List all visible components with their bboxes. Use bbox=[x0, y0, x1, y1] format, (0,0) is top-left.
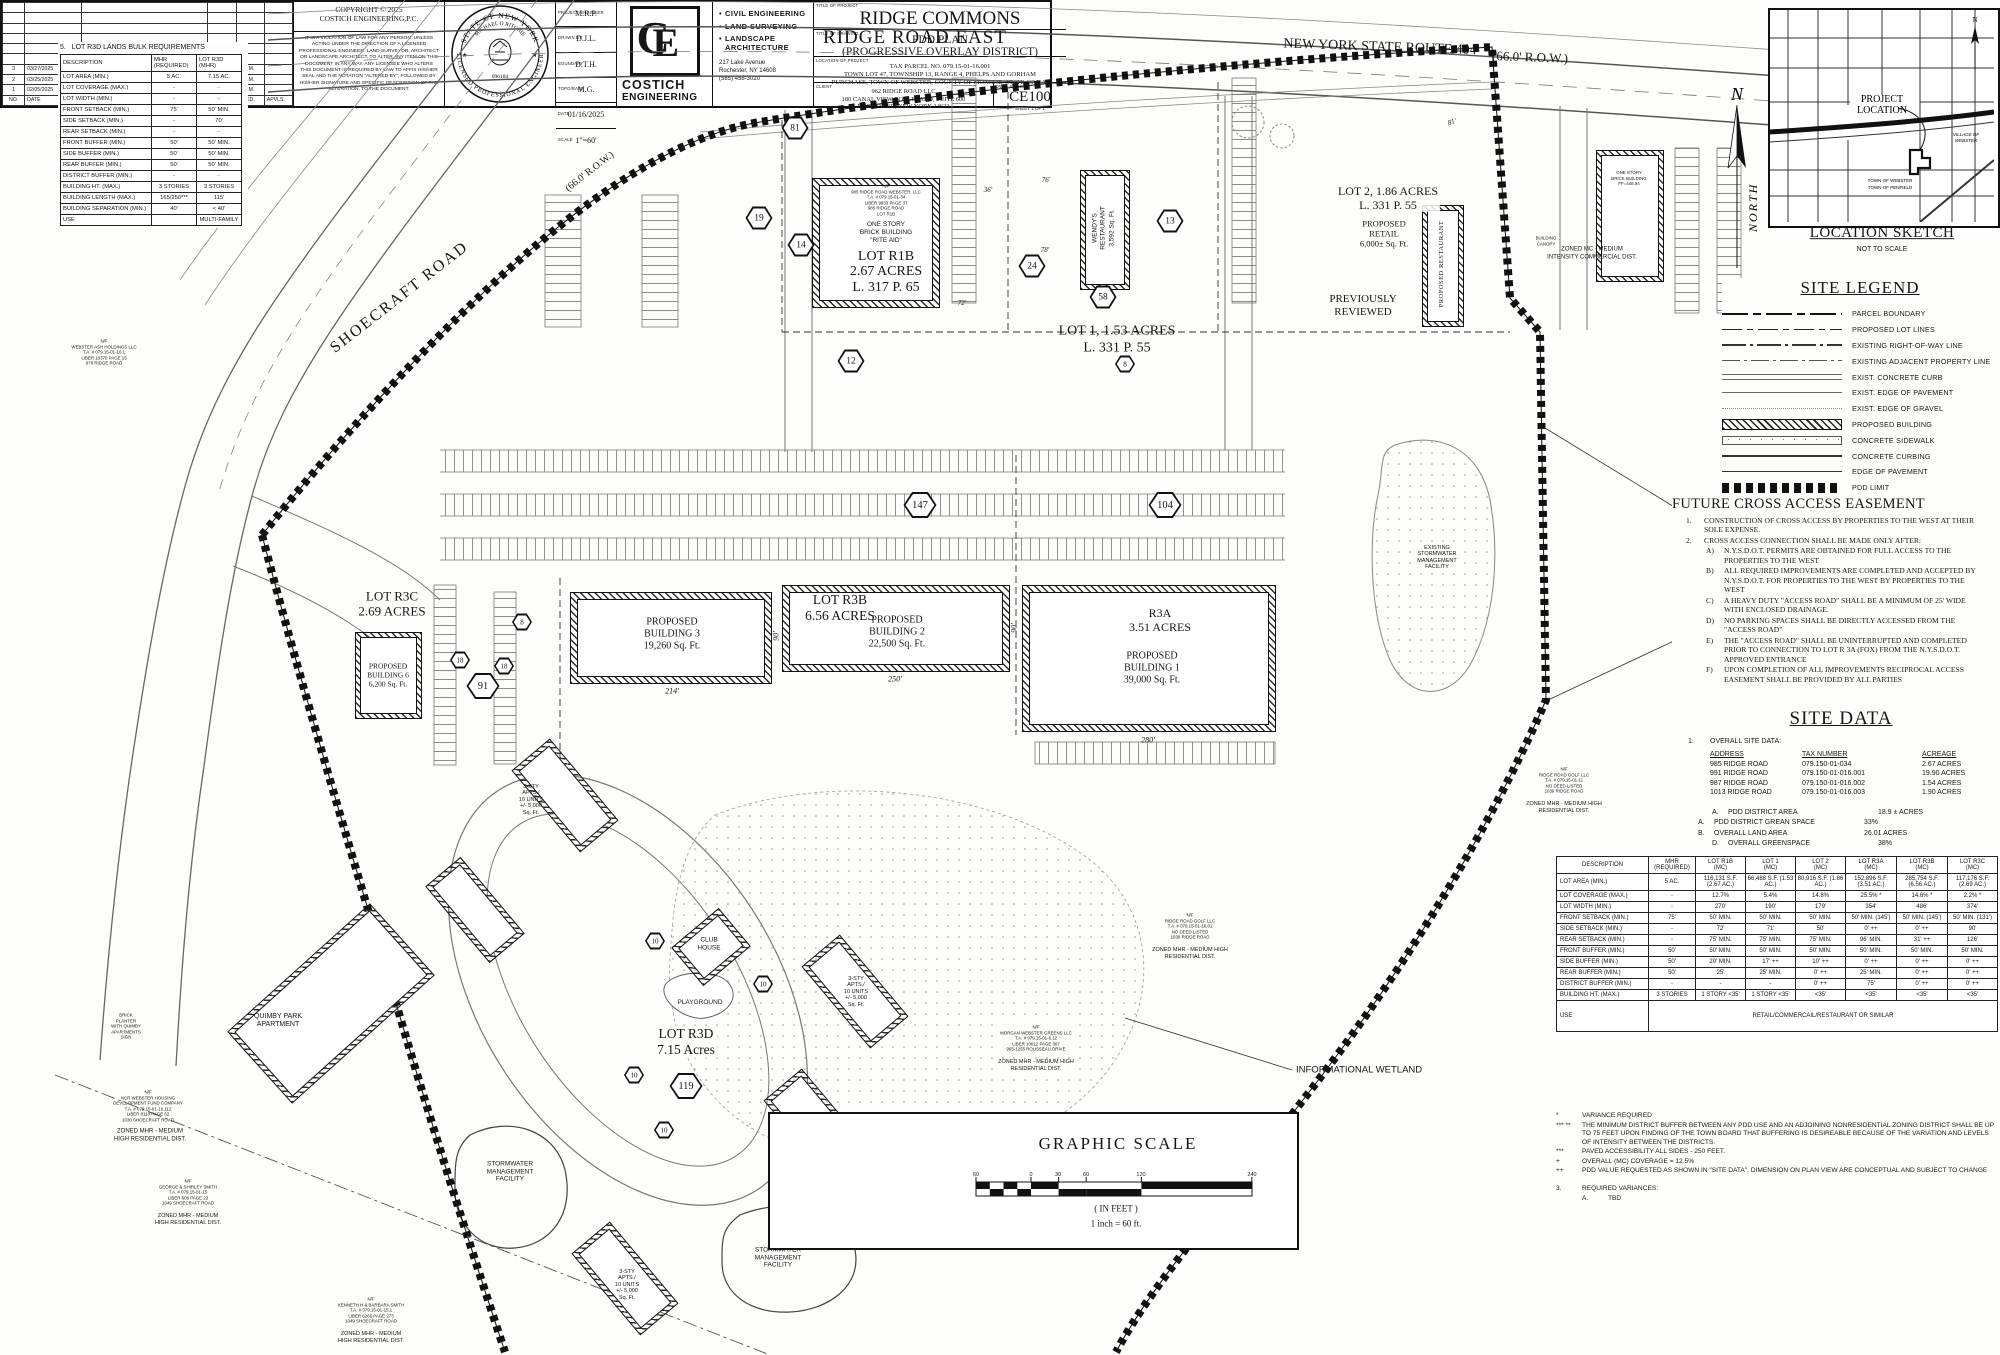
label-one-story-brick: ONE STORYBRICK BUILDINGFF=448.94 bbox=[1611, 170, 1646, 187]
scale-tick: 60 bbox=[973, 1172, 979, 1178]
legend-symbol-icon bbox=[1722, 308, 1842, 320]
legend-symbol-icon bbox=[1722, 371, 1842, 383]
legend-symbol-icon bbox=[1722, 403, 1842, 415]
col-acreage: ACREAGE bbox=[1922, 751, 1994, 758]
label-building-canopy: BUILDINGCANOPY bbox=[1536, 236, 1557, 247]
legend-item: PDD LIMIT bbox=[1722, 480, 1998, 496]
site-metric-row: D. OVERALL GREENSPACE 38% bbox=[1712, 839, 1994, 850]
table-row: BUILDING HT. (MAX.) 3 STORIES 3 STORIES bbox=[61, 182, 242, 193]
dim-72: 72' bbox=[958, 299, 967, 307]
col-header: MHR(REQUIRED) bbox=[1649, 857, 1696, 874]
legend-item: EXIST. EDGE OF PAVEMENT bbox=[1722, 385, 1998, 401]
note-line: F) UPON COMPLETION OF ALL IMPROVEMENTS R… bbox=[1706, 665, 1982, 684]
cross-access-easement-notes: FUTURE CROSS ACCESS EASEMENT 1. CONSTRUC… bbox=[1672, 496, 1982, 685]
owner-note-webster-ash: N/FWEBSTER ASH HOLDINGS LLCT.A. # 079.15… bbox=[69, 338, 138, 366]
label-zoned-mhr: ZONED MHR - MEDIUMHIGH RESIDENTIAL DIST. bbox=[338, 1331, 404, 1345]
required-variances: 3. REQUIRED VARIANCES: bbox=[1556, 1185, 1996, 1194]
label-building-6: PROPOSEDBUILDING 66,200 Sq. Ft. bbox=[367, 663, 409, 690]
label-zoned-mc: ZONED MC - MEDIUMINTENSITY COMMERCIAL DI… bbox=[1547, 247, 1637, 262]
legend-symbol-icon bbox=[1722, 466, 1842, 478]
table-row: SIDE SETBACK (MIN.) - 72' 71' 50' 0' ++ … bbox=[1557, 924, 1998, 935]
legend-item: CONCRETE CURBING bbox=[1722, 448, 1998, 464]
graphic-scale-title: GRAPHIC SCALE bbox=[1039, 1134, 1198, 1154]
footnote: ++ PDD VALUE REQUESTED AS SHOWN IN "SITE… bbox=[1556, 1167, 1996, 1176]
svg-text:NORTH: NORTH bbox=[1746, 183, 1760, 233]
note-line: A) N.Y.S.D.O.T. PERMITS ARE OBTAINED FOR… bbox=[1706, 546, 1982, 565]
label-r3a: R3A3.51 ACRES bbox=[1129, 606, 1191, 634]
note-line: 1. CONSTRUCTION OF CROSS ACCESS BY PROPE… bbox=[1686, 516, 1982, 535]
label-apartments: 3-STYAPTS./10 UNITS+/- 5,000Sq. Ft. bbox=[844, 976, 868, 1008]
col-header: DESCRIPTION bbox=[61, 55, 152, 72]
table-row: LOT COVERAGE (MAX.) - - bbox=[61, 83, 242, 94]
col-header: LOT 1(MC) bbox=[1746, 857, 1796, 874]
legend-symbol-icon bbox=[1722, 418, 1842, 430]
label-building-2: PROPOSEDBUILDING 222,500 Sq. Ft. bbox=[869, 614, 925, 649]
owner-note-smith-g: N/FGEORGE & SHIRLEY SMITHT.A. # 079.15-0… bbox=[159, 1178, 217, 1206]
legend-label: PROPOSED BUILDING bbox=[1852, 420, 1932, 429]
label-stormwater-a: STORMWATERMANAGEMENTFACILITY bbox=[487, 1161, 534, 1184]
legend-label: EXISTING RIGHT-OF-WAY LINE bbox=[1852, 341, 1963, 350]
owner-note-ncr: N/FNCR WEBSTER HOUSINGDEVELOPMENT FUND C… bbox=[113, 1090, 183, 1123]
col-header: LOT 2(MC) bbox=[1796, 857, 1846, 874]
road-label-ridge-road-east: RIDGE ROAD EAST bbox=[823, 27, 1007, 49]
table-row: REAR BUFFER (MIN.) 50' 25' 25' MIN. 0' +… bbox=[1557, 968, 1998, 979]
label-wendys: WENDY'SRESTAURANT3,592 Sq. Ft. bbox=[1091, 206, 1116, 250]
owner-note-golf-1: N/FRIDGE ROAD GOLF LLCT.A. # 079.15-01-1… bbox=[1163, 912, 1217, 940]
dim-280: 280' bbox=[1141, 735, 1155, 744]
table-row: LOT COVERAGE (MAX.) - 12.7% 5.4% 14.8% 2… bbox=[1557, 891, 1998, 902]
legend-label: CONCRETE SIDEWALK bbox=[1852, 436, 1935, 445]
table-title: LOT R3D LANDS BULK REQUIREMENTS bbox=[72, 44, 205, 51]
table-row: FRONT BUFFER (MIN.) 50' 50' MIN. bbox=[61, 138, 242, 149]
col-header: LOT R1B(MC) bbox=[1696, 857, 1746, 874]
table-row: FRONT BUFFER (MIN.) 50' 50' MIN. 50' MIN… bbox=[1557, 946, 1998, 957]
scale-units: ( IN FEET ) bbox=[1094, 1204, 1138, 1215]
label-lot-1: LOT 1, 1.53 ACRESL. 331 P. 55 bbox=[1059, 323, 1176, 356]
note-number: 5. bbox=[60, 44, 66, 51]
table-row: SIDE SETBACK (MIN.) - 70' bbox=[61, 116, 242, 127]
label-lot-r3d: LOT R3D7.15 Acres bbox=[655, 1026, 717, 1058]
table-row: LOT AREA (MIN.) 5 AC. 7.15 AC. bbox=[61, 72, 242, 83]
label-zoned-mhr-full: ZONED MHR - MEDIUM HIGHRESIDENTIAL DIST. bbox=[996, 1059, 1076, 1073]
table-row: FRONT SETBACK (MIN.) 75' 50' MIN. 50' MI… bbox=[1557, 913, 1998, 924]
legend-symbol-icon bbox=[1722, 482, 1842, 494]
pdd-bulk-requirements-table: DESCRIPTION MHR(REQUIRED) LOT R1B(MC) LO… bbox=[1556, 856, 1997, 1032]
legend-label: EXIST. EDGE OF PAVEMENT bbox=[1852, 388, 1953, 397]
table-row: REAR BUFFER (MIN.) 50' 50' MIN. bbox=[61, 160, 242, 171]
table-row: REAR SETBACK (MIN.) - 75' MIN. 75' MIN. … bbox=[1557, 935, 1998, 946]
owner-note-morgan: N/FMORGAN WEBSTER GREENS LLCT.A. # 079.1… bbox=[998, 1024, 1074, 1052]
scale-ratio: 1 inch = 60 ft. bbox=[1091, 1219, 1142, 1230]
svg-text:PROJECT: PROJECT bbox=[1861, 94, 1903, 105]
site-metric-row: A. PDD DISTRICT AREA 18.9 ± ACRES bbox=[1712, 808, 1994, 819]
location-sketch-subtitle: NOT TO SCALE bbox=[1857, 246, 1908, 254]
col-header: LOT R3B(MC) bbox=[1897, 857, 1948, 874]
parcel-row: 1013 RIDGE ROAD 079.150-01-016.003 1.90 … bbox=[1710, 788, 1994, 797]
label-building-3: PROPOSEDBUILDING 319,260 Sq. Ft. bbox=[644, 616, 700, 651]
parcel-row: 991 RIDGE ROAD 079.150-01-016.001 19.90 … bbox=[1710, 769, 1994, 778]
label-rite-aid: ONE STORYBRICK BUILDING"RITE AID" bbox=[860, 221, 912, 245]
parcel-row: 987 RIDGE ROAD 079.150-01-016.002 1.54 A… bbox=[1710, 779, 1994, 788]
legend-title: SITE LEGEND bbox=[1722, 278, 1998, 298]
table-row: DISTRICT BUFFER (MIN.) - - - 0' ++ 75' 0… bbox=[1557, 979, 1998, 990]
table-row: DISTRICT BUFFER (MIN.) - - bbox=[61, 171, 242, 182]
label-informational-wetland: INFORMATIONAL WETLAND bbox=[1296, 1064, 1422, 1075]
legend-label: PARCEL BOUNDARY bbox=[1852, 309, 1926, 318]
legend-item: EDGE OF PAVEMENT bbox=[1722, 464, 1998, 480]
dim-36: 36' bbox=[984, 186, 993, 194]
owner-note-lot-r1b: N/F985 RIDGE ROAD WEBSTER, LLCT.A. # 079… bbox=[851, 184, 921, 217]
site-data-title: SITE DATA bbox=[1688, 708, 1994, 730]
owner-note-golf-2: N/FRIDGE ROAD GOLF LLCT.A. # 079.15-01-1… bbox=[1537, 766, 1591, 794]
footnote: * VARIANCE REQUIRED bbox=[1556, 1112, 1996, 1121]
svg-text:N: N bbox=[1972, 16, 1977, 24]
label-lot-2: LOT 2, 1.86 ACRESL. 331 P. 55 bbox=[1336, 184, 1440, 212]
table-row: SIDE BUFFER (MIN.) 50' 20' MIN. 17' ++ 1… bbox=[1557, 957, 1998, 968]
label-zoned-mhr: ZONED MHR - MEDIUMHIGH RESIDENTIAL DIST. bbox=[155, 1213, 221, 1227]
dim-76: 76' bbox=[1042, 176, 1051, 184]
legend-label: PROPOSED LOT LINES bbox=[1852, 325, 1935, 334]
site-metric-row: A. PDD DISTRICT GREAN SPACE 33% bbox=[1698, 818, 1994, 829]
label-quimby-park: QUIMBY PARKAPARTMENT bbox=[254, 1013, 302, 1030]
label-lot-r3c: LOT R3C2.69 ACRES bbox=[356, 589, 427, 620]
table-row: USE MULTI-FAMILY bbox=[61, 215, 242, 226]
label-previously-reviewed: PREVIOUSLYREVIEWED bbox=[1329, 293, 1396, 319]
table-row: BUILDING SEPARATION (MIN.) 40' < 40' bbox=[61, 204, 242, 215]
dim-214: 214' bbox=[665, 686, 679, 695]
legend-label: EXIST. EDGE OF GRAVEL bbox=[1852, 404, 1943, 413]
site-legend: SITE LEGEND PARCEL BOUNDARY PROPOSED LOT… bbox=[1722, 278, 1998, 496]
legend-symbol-icon bbox=[1722, 434, 1842, 446]
table-row: LOT AREA (MIN.) 5 AC. 116,131 S.F. (2.67… bbox=[1557, 874, 1998, 891]
scale-tick: 30 bbox=[1055, 1172, 1061, 1178]
legend-label: EXIST. CONCRETE CURB bbox=[1852, 373, 1943, 382]
label-lot-r3b: LOT R3B6.56 ACRES bbox=[805, 592, 875, 624]
legend-label: EXISTING ADJACENT PROPERTY LINE bbox=[1852, 357, 1990, 366]
legend-label: PDD LIMIT bbox=[1852, 483, 1889, 492]
col-header: LOT R3A(MC) bbox=[1846, 857, 1897, 874]
legend-item: PROPOSED LOT LINES bbox=[1722, 322, 1998, 338]
legend-symbol-icon bbox=[1722, 324, 1842, 336]
col-header: DESCRIPTION bbox=[1557, 857, 1649, 874]
scale-tick: 240 bbox=[1247, 1172, 1256, 1178]
note-line: E) THE "ACCESS ROAD" SHALL BE UNINTERRUP… bbox=[1706, 636, 1982, 664]
label-proposed-restaurant: PROPOSED RESTAURANT bbox=[1438, 221, 1446, 308]
use-row: USE RETAIL/COMMERCAIL/RESTAURANT OR SIMI… bbox=[1557, 1001, 1998, 1032]
svg-text:TOWN OF WEBSTER: TOWN OF WEBSTER bbox=[1868, 178, 1913, 183]
footnote: *** ** THE MINIMUM DISTRICT BUFFER BETWE… bbox=[1556, 1122, 1996, 1148]
col-tax: TAX NUMBER bbox=[1802, 751, 1922, 758]
legend-symbol-icon bbox=[1722, 355, 1842, 367]
table-row: LOT WIDTH (MIN.) - 270' 190' 179' 354' 4… bbox=[1557, 902, 1998, 913]
footnote: + OVERALL (MC) COVERAGE = 12.5% bbox=[1556, 1158, 1996, 1167]
scale-bar bbox=[770, 1114, 1293, 1244]
site-plan-sheet: N NORTH RIDGE ROAD EAST NEW YORK STATE R… bbox=[0, 0, 2000, 1355]
note-line: 2. CROSS ACCESS CONNECTION SHALL BE MADE… bbox=[1686, 536, 1982, 545]
dim-90-a: 90' bbox=[771, 631, 780, 641]
label-zoned-mhr: ZONED MHR - MEDIUMHIGH RESIDENTIAL DIST. bbox=[114, 1129, 186, 1144]
label-apartments: 3-STYAPTS./10 UNITS+/- 5,000Sq. Ft. bbox=[615, 1269, 639, 1301]
legend-item: PARCEL BOUNDARY bbox=[1722, 306, 1998, 322]
location-sketch: N PROJECT LOCATION VILLAGE OF WEBSTER TO… bbox=[1768, 8, 2000, 228]
road-label-route-404-row: (66.0' R.O.W.) bbox=[1492, 48, 1568, 66]
section-heading: OVERALL SITE DATA: bbox=[1710, 738, 1781, 745]
table-row: BUILDING LENGTH (MAX.) 165/250*** 115' bbox=[61, 193, 242, 204]
label-zoned-mhr-full: ZONED MHR - MEDIUM HIGHRESIDENTIAL DIST. bbox=[1150, 947, 1230, 961]
legend-item: CONCRETE SIDEWALK bbox=[1722, 432, 1998, 448]
note-line: D) NO PARKING SPACES SHALL BE DIRECTLY A… bbox=[1706, 616, 1982, 635]
owner-note-smith-k: N/FKENNETH H & BARBARA SMITHT.A. # 079.1… bbox=[338, 1296, 404, 1324]
col-header: LOT R3C(MC) bbox=[1948, 857, 1998, 874]
legend-label: CONCRETE CURBING bbox=[1852, 452, 1931, 461]
label-club-house: CLUBHOUSE bbox=[697, 936, 720, 951]
label-lot-r1b: LOT R1B2.67 ACRESL. 317 P. 65 bbox=[850, 249, 922, 295]
label-building-1: PROPOSEDBUILDING 139,000 Sq. Ft. bbox=[1124, 650, 1180, 685]
scale-tick: 60 bbox=[1083, 1172, 1089, 1178]
legend-symbol-icon bbox=[1722, 387, 1842, 399]
legend-symbol-icon bbox=[1722, 450, 1842, 462]
svg-text:TOWN OF PENFIELD: TOWN OF PENFIELD bbox=[1868, 185, 1913, 190]
footnote: *** PAVED ACCESSIBILITY ALL SIDES - 250 … bbox=[1556, 1148, 1996, 1157]
parcel-row: 985 RIDGE ROAD 079.150-01-034 2.67 ACRES bbox=[1710, 760, 1994, 769]
label-existing-stormwater: EXISTINGSTORMWATERMANAGEMENTFACILITY bbox=[1415, 545, 1458, 571]
table-row: BUILDING HT. (MAX.) 3 STORIES 1 STORY <3… bbox=[1557, 990, 1998, 1001]
site-data-block: SITE DATA 1.OVERALL SITE DATA: ADDRESS T… bbox=[1688, 708, 1994, 871]
label-playground: PLAYGROUND bbox=[677, 999, 722, 1007]
dim-250: 250' bbox=[888, 674, 902, 683]
table-row: LOT WIDTH (MIN.) - - bbox=[61, 94, 242, 105]
label-brick-planter: BRICKPLANTERWITH QUIMBYAPARTMENTSSIGN bbox=[111, 1012, 141, 1040]
table-row: FRONT SETBACK (MIN.) 75' 50' MIN. bbox=[61, 105, 242, 116]
graphic-scale-box: GRAPHIC SCALE 60 0 30 60 120 240 ( IN FE… bbox=[768, 1112, 1299, 1250]
dim-90-b: 90' bbox=[1009, 623, 1018, 633]
scale-tick: 0 bbox=[1029, 1172, 1032, 1178]
svg-text:WEBSTER: WEBSTER bbox=[1955, 138, 1978, 143]
note-line: C) A HEAVY DUTY "ACCESS ROAD" SHALL BE A… bbox=[1706, 596, 1982, 615]
legend-item: EXIST. EDGE OF GRAVEL bbox=[1722, 401, 1998, 417]
legend-item: PROPOSED BUILDING bbox=[1722, 417, 1998, 433]
legend-item: EXISTING RIGHT-OF-WAY LINE bbox=[1722, 338, 1998, 354]
col-address: ADDRESS bbox=[1710, 751, 1802, 758]
location-sketch-map: N PROJECT LOCATION VILLAGE OF WEBSTER TO… bbox=[1770, 10, 1994, 222]
pdd-table-notes: * VARIANCE REQUIRED *** ** THE MINIMUM D… bbox=[1556, 1112, 1996, 1204]
table-row: SIDE BUFFER (MIN.) 50' 50' MIN. bbox=[61, 149, 242, 160]
legend-item: EXIST. CONCRETE CURB bbox=[1722, 369, 1998, 385]
legend-symbol-icon bbox=[1722, 339, 1842, 351]
svg-text:N: N bbox=[1730, 84, 1744, 104]
cross-access-title: FUTURE CROSS ACCESS EASEMENT bbox=[1672, 496, 1982, 513]
label-lot-2-retail: PROPOSEDRETAIL6,000± Sq. Ft. bbox=[1360, 219, 1408, 250]
svg-text:VILLAGE OF: VILLAGE OF bbox=[1953, 132, 1980, 137]
note-line: B) ALL REQUIRED IMPROVEMENTS ARE COMPLET… bbox=[1706, 566, 1982, 594]
dim-78: 78' bbox=[1041, 246, 1050, 254]
svg-text:LOCATION: LOCATION bbox=[1857, 105, 1907, 116]
label-apartments: 3-STYAPTS./10 UNITS+/- 5,000Sq. Ft. bbox=[519, 784, 543, 816]
site-metric-row: B. OVERALL LAND AREA 26.01 ACRES bbox=[1698, 829, 1994, 840]
label-zoned-mhr-full: ZONED MHR - MEDIUM HIGHRESIDENTIAL DIST. bbox=[1524, 801, 1604, 815]
legend-item: EXISTING ADJACENT PROPERTY LINE bbox=[1722, 353, 1998, 369]
r3d-bulk-requirements-table: 5. LOT R3D LANDS BULK REQUIREMENTS DESCR… bbox=[58, 42, 248, 228]
table-row: REAR SETBACK (MIN.) - - bbox=[61, 127, 242, 138]
scale-tick: 120 bbox=[1136, 1172, 1145, 1178]
legend-label: EDGE OF PAVEMENT bbox=[1852, 467, 1928, 476]
